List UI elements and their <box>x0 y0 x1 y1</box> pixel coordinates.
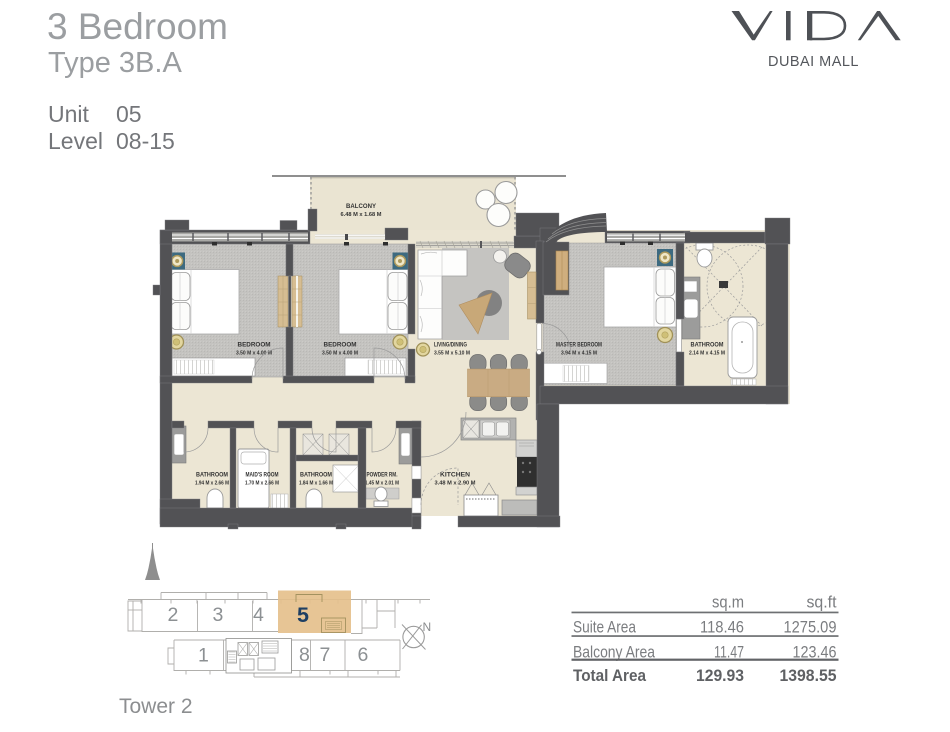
svg-text:1.45 M x 2.01 M: 1.45 M x 2.01 M <box>365 481 399 487</box>
svg-text:BEDROOM: BEDROOM <box>238 342 271 349</box>
svg-text:5: 5 <box>297 603 309 627</box>
svg-text:LIVING/DINING: LIVING/DINING <box>434 342 467 349</box>
svg-text:118.46: 118.46 <box>700 619 744 637</box>
svg-text:2.14 M x 4.15 M: 2.14 M x 4.15 M <box>689 351 725 357</box>
svg-text:1.84 M x 1.66 M: 1.84 M x 1.66 M <box>299 481 333 487</box>
svg-text:1.70 M x 2.66 M: 1.70 M x 2.66 M <box>245 481 279 487</box>
svg-text:MASTER BEDROOM: MASTER BEDROOM <box>556 342 602 349</box>
svg-text:Total Area: Total Area <box>573 667 647 685</box>
svg-text:1275.09: 1275.09 <box>784 619 837 637</box>
svg-text:129.93: 129.93 <box>696 667 744 685</box>
svg-text:BEDROOM: BEDROOM <box>324 342 357 349</box>
svg-text:3.55 M x 5.10 M: 3.55 M x 5.10 M <box>434 351 470 357</box>
svg-text:N: N <box>423 620 432 634</box>
svg-text:BATHROOM: BATHROOM <box>196 472 228 479</box>
svg-text:BATHROOM: BATHROOM <box>300 472 332 479</box>
svg-text:3.48 M x 2.90 M: 3.48 M x 2.90 M <box>435 481 477 487</box>
svg-text:4: 4 <box>253 604 264 626</box>
svg-text:KITCHEN: KITCHEN <box>440 472 470 479</box>
svg-text:2: 2 <box>168 604 179 626</box>
svg-text:1398.55: 1398.55 <box>780 667 837 685</box>
svg-text:6: 6 <box>358 644 369 666</box>
svg-text:sq.ft: sq.ft <box>807 594 837 612</box>
svg-text:3: 3 <box>213 604 224 626</box>
svg-text:BALCONY: BALCONY <box>346 203 377 210</box>
svg-text:6.48 M x 1.68 M: 6.48 M x 1.68 M <box>341 212 383 218</box>
svg-text:1: 1 <box>198 645 209 667</box>
svg-text:MAID'S ROOM: MAID'S ROOM <box>246 472 279 479</box>
svg-text:8: 8 <box>299 644 310 666</box>
svg-text:1.94 M x 2.66 M: 1.94 M x 2.66 M <box>195 481 229 487</box>
svg-text:sq.m: sq.m <box>712 594 744 612</box>
svg-text:3.50 M x 4.00 M: 3.50 M x 4.00 M <box>322 351 358 357</box>
svg-text:BATHROOM: BATHROOM <box>691 342 724 349</box>
svg-text:7: 7 <box>320 644 331 666</box>
svg-text:POWDER RM.: POWDER RM. <box>367 472 398 479</box>
svg-text:3.50 M x 4.00 M: 3.50 M x 4.00 M <box>236 351 272 357</box>
svg-text:3.94 M x 4.15 M: 3.94 M x 4.15 M <box>561 351 597 357</box>
svg-text:Suite Area: Suite Area <box>573 619 637 637</box>
